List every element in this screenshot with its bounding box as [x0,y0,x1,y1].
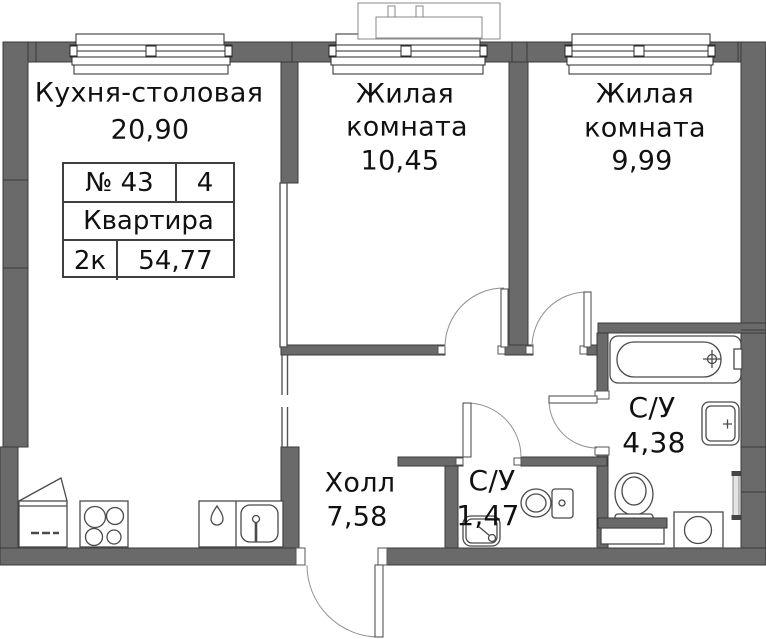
dashed-opening [282,355,288,447]
ac-unit-icon [358,3,500,39]
towel-rail-icon [732,471,741,520]
hall-name: Холл [325,470,396,497]
apt-number: № 43 [64,164,177,201]
apt-floor: 4 [177,164,233,201]
living2-area: 9,99 [611,148,672,175]
stove-icon [80,501,128,547]
living1-area: 10,45 [361,148,440,175]
kitchen-area: 20,90 [111,117,190,144]
living1-name-line1: Жилая [356,81,454,108]
apt-rooms: 2к [64,241,118,280]
washbasin-large-icon [702,402,739,445]
apartment-info-table: № 43 4 Квартира 2к 54,77 [62,162,235,278]
apt-total-area: 54,77 [118,241,233,280]
door-wc-small [463,403,521,457]
floor-plan: Кухня-столовая 20,90 Жилая комната 10,45… [0,0,766,639]
kitchen-sink-icon [199,501,283,547]
door-entrance [307,565,383,637]
wc-large-name: С/У [629,394,676,422]
bathtub-icon [610,336,742,383]
apt-kind: Квартира [64,203,233,239]
plumbing-box [598,518,667,544]
living2-name-line2: комната [584,115,706,142]
window-living2-icon [565,34,715,74]
thin-partition [280,183,287,347]
fridge-icon [19,478,67,547]
washing-machine-icon [674,512,723,548]
wc-small-area: 1,47 [456,502,520,530]
kitchen-name: Кухня-столовая [35,80,264,107]
wc-small-name: С/У [469,467,516,495]
door-living1 [445,288,508,347]
hall-area: 7,58 [326,504,387,531]
toilet-small-icon [521,489,573,518]
door-wc-large [549,396,597,448]
window-kitchen-icon [70,34,232,74]
living2-name-line1: Жилая [596,81,694,108]
door-living2 [532,292,591,347]
window-living1-icon [329,34,487,74]
wc-large-area: 4,38 [622,429,686,457]
living1-name-line2: комната [346,114,468,141]
